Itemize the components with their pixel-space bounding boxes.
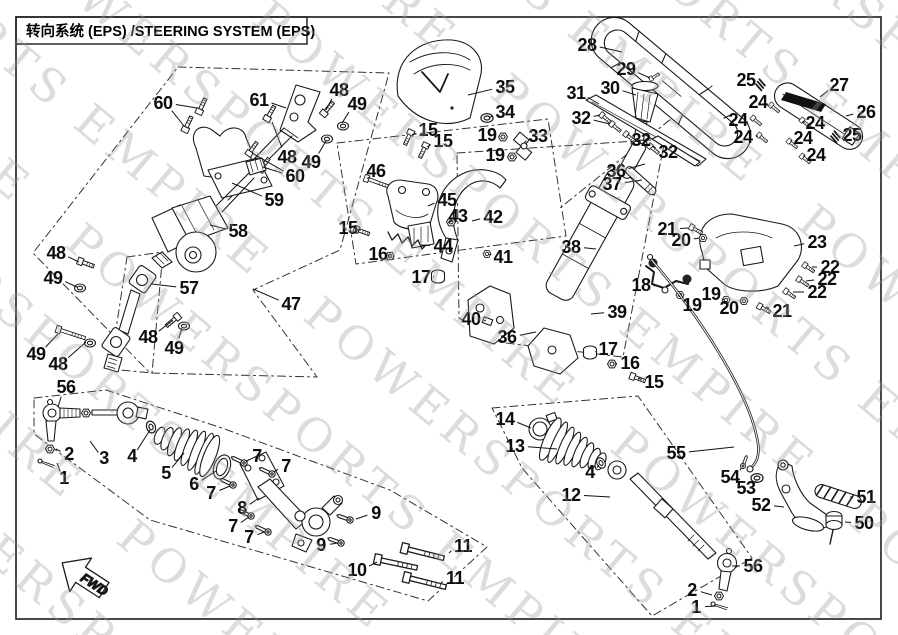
part-callout-40: 40 — [461, 309, 481, 329]
part-callout-1: 1 — [59, 468, 69, 488]
fastener-screw — [802, 262, 816, 274]
part-callout-56: 56 — [743, 556, 763, 576]
fastener-bolt — [400, 543, 445, 564]
tie-rod-left — [92, 402, 148, 424]
part-callout-16: 16 — [368, 244, 388, 264]
part-callout-11: 11 — [446, 568, 465, 588]
part-callout-15: 15 — [433, 131, 453, 151]
tie-rod-end-left — [43, 400, 80, 442]
part-callout-32: 32 — [631, 130, 651, 150]
part-callout-48: 48 — [277, 147, 297, 167]
part-callout-57: 57 — [179, 278, 199, 298]
part-callout-19: 19 — [682, 295, 702, 315]
clamp-ring — [145, 420, 157, 434]
fastener-nut — [508, 153, 517, 161]
part-callout-19: 19 — [477, 125, 497, 145]
part-callout-60: 60 — [153, 93, 173, 113]
leader-line — [584, 496, 610, 498]
part-callout-24: 24 — [748, 92, 768, 112]
leader-line — [591, 313, 604, 314]
parts-diagram-page: 转向系统 (EPS) /STEERING SYSTEM (EPS) — [0, 0, 898, 635]
leader-line — [58, 397, 61, 407]
part-callout-58: 58 — [228, 221, 248, 241]
mount-bracket-upper — [280, 85, 320, 142]
part-callout-15: 15 — [338, 218, 358, 238]
fastener-nut — [82, 409, 91, 417]
leader-line — [258, 532, 265, 535]
leader-line — [137, 430, 150, 450]
fastener-screw — [750, 115, 763, 127]
part-callout-7: 7 — [281, 456, 291, 476]
tie-rod-end-right — [718, 549, 737, 592]
part-callout-32: 32 — [571, 108, 591, 128]
part-callout-7: 7 — [228, 516, 238, 536]
leader-line — [159, 320, 173, 331]
part-callout-46: 46 — [366, 161, 386, 181]
leader-line — [820, 91, 828, 97]
fastener-bolt — [195, 97, 209, 116]
fastener-screw — [327, 535, 345, 547]
part-callout-34: 34 — [495, 102, 515, 122]
fastener-bolt — [417, 142, 430, 160]
bellows-left — [147, 414, 223, 479]
part-callout-11: 11 — [454, 536, 473, 556]
leader-line — [846, 114, 853, 116]
fastener-nut — [584, 346, 597, 359]
fastener-nut — [715, 592, 724, 600]
part-callout-37: 37 — [602, 174, 622, 194]
part-callout-10: 10 — [347, 560, 367, 580]
part-callout-20: 20 — [671, 230, 691, 250]
part-callout-7: 7 — [244, 527, 254, 547]
fastener-screw — [336, 512, 354, 524]
fastener-pin — [37, 459, 55, 468]
part-callout-52: 52 — [751, 495, 771, 515]
part-callout-30: 30 — [600, 78, 620, 98]
leader-line — [172, 111, 184, 126]
pivot-cover — [700, 214, 802, 291]
part-callout-8: 8 — [237, 498, 247, 518]
part-callout-7: 7 — [252, 446, 262, 466]
part-callout-13: 13 — [505, 436, 525, 456]
fastener-nut — [699, 235, 707, 242]
fastener-washer — [85, 339, 96, 347]
leader-line — [449, 551, 451, 553]
leader-line — [845, 522, 851, 523]
leader-line — [68, 257, 79, 262]
leader-line — [806, 280, 814, 281]
fastener-screw — [783, 288, 797, 300]
part-callout-6: 6 — [189, 474, 199, 494]
leader-line — [356, 515, 367, 519]
leader-line — [705, 606, 716, 607]
part-callout-35: 35 — [495, 77, 515, 97]
leader-line — [694, 238, 699, 239]
part-callout-28: 28 — [577, 35, 597, 55]
part-callout-9: 9 — [371, 503, 381, 523]
part-callout-49: 49 — [164, 338, 184, 358]
leader-line — [330, 543, 338, 544]
part-callout-3: 3 — [99, 448, 109, 468]
leader-line — [517, 422, 531, 428]
part-callout-55: 55 — [666, 443, 686, 463]
fastener-bolt — [402, 572, 447, 593]
leader-line — [441, 582, 443, 584]
part-callout-41: 41 — [493, 247, 513, 267]
leader-line — [689, 447, 734, 452]
part-callout-2: 2 — [64, 444, 74, 464]
part-callout-48: 48 — [46, 243, 66, 263]
fastener-washer — [75, 284, 86, 292]
part-callout-48: 48 — [329, 80, 349, 100]
part-callout-61: 61 — [249, 90, 269, 110]
fastener-nut — [46, 445, 55, 453]
leader-line — [68, 342, 86, 358]
part-callout-1: 1 — [691, 597, 701, 617]
fwd-arrow: FWD — [51, 546, 118, 609]
leader-line — [65, 282, 77, 287]
lever-knob — [826, 512, 842, 545]
leader-line — [253, 289, 279, 300]
part-callout-49: 49 — [43, 268, 63, 288]
column-cover — [397, 40, 481, 124]
part-callout-21: 21 — [772, 301, 792, 321]
part-callout-4: 4 — [585, 462, 595, 482]
leader-line — [250, 498, 259, 504]
part-callout-56: 56 — [56, 377, 76, 397]
leader-line — [152, 284, 176, 287]
part-callout-48: 48 — [48, 354, 68, 374]
part-callout-27: 27 — [829, 75, 849, 95]
fastener-screw — [756, 132, 769, 144]
part-callout-16: 16 — [620, 353, 640, 373]
fastener-washer — [322, 135, 333, 143]
part-callout-22: 22 — [807, 282, 827, 302]
fastener-screw — [254, 523, 272, 536]
fastener-washer — [179, 322, 190, 330]
part-callout-24: 24 — [733, 127, 753, 147]
steering-system-diagram: 转向系统 (EPS) /STEERING SYSTEM (EPS) — [0, 0, 898, 635]
fastener-bolt — [55, 325, 86, 341]
part-callout-38: 38 — [561, 237, 581, 257]
part-callout-36: 36 — [497, 327, 517, 347]
fastener-bolt — [402, 129, 415, 147]
leader-line — [701, 592, 712, 595]
part-callout-39: 39 — [607, 302, 627, 322]
leader-line — [484, 320, 486, 321]
leader-line — [90, 441, 98, 452]
fastener-washer — [481, 114, 493, 123]
part-callout-31: 31 — [566, 83, 586, 103]
fastener-nut — [740, 298, 748, 305]
part-callout-49: 49 — [347, 94, 367, 114]
leader-line — [489, 254, 490, 255]
part-callout-19: 19 — [701, 284, 721, 304]
part-callout-5: 5 — [161, 463, 171, 483]
part-callout-17: 17 — [411, 267, 431, 287]
fastener-clip — [755, 79, 766, 90]
part-callout-59: 59 — [264, 190, 284, 210]
fastener-bolt — [319, 100, 336, 118]
part-callout-9: 9 — [316, 535, 326, 555]
part-callout-4: 4 — [127, 446, 137, 466]
part-callout-17: 17 — [598, 339, 618, 359]
leader-line — [680, 228, 688, 229]
tie-rod-right — [608, 461, 716, 559]
part-callout-24: 24 — [806, 145, 826, 165]
leader-line — [740, 468, 741, 470]
part-callout-47: 47 — [281, 294, 301, 314]
part-callout-32: 32 — [658, 142, 678, 162]
part-callout-50: 50 — [854, 513, 874, 533]
part-callout-20: 20 — [719, 298, 739, 318]
leader-line — [46, 334, 58, 347]
part-callout-25: 25 — [736, 70, 756, 90]
part-callout-23: 23 — [807, 232, 827, 252]
fastener-bolt — [77, 257, 96, 270]
fastener-screw — [230, 454, 248, 467]
leader-line — [520, 332, 536, 335]
part-callout-26: 26 — [856, 102, 876, 122]
leader-line — [421, 245, 430, 246]
leader-line — [219, 486, 230, 491]
part-callout-14: 14 — [495, 409, 515, 429]
part-callout-18: 18 — [631, 275, 651, 295]
leader-line — [176, 105, 197, 109]
part-callout-7: 7 — [206, 483, 216, 503]
page-title: 转向系统 (EPS) /STEERING SYSTEM (EPS) — [26, 22, 315, 40]
part-callout-15: 15 — [644, 372, 664, 392]
leader-line — [272, 122, 282, 147]
leader-line — [774, 506, 784, 507]
part-callout-44: 44 — [433, 236, 453, 256]
fastener-bolt — [373, 554, 418, 573]
part-callout-25: 25 — [842, 125, 862, 145]
part-callout-43: 43 — [448, 206, 468, 226]
part-callout-51: 51 — [856, 487, 876, 507]
part-callout-29: 29 — [616, 59, 636, 79]
link-bracket — [646, 259, 692, 294]
part-callout-12: 12 — [561, 485, 581, 505]
leader-line — [472, 219, 480, 221]
part-callout-19: 19 — [485, 145, 505, 165]
part-callout-49: 49 — [26, 344, 46, 364]
part-callout-33: 33 — [528, 126, 548, 146]
part-callout-42: 42 — [483, 207, 503, 227]
part-callout-60: 60 — [285, 166, 305, 186]
fastener-screw — [609, 121, 623, 134]
part-callout-48: 48 — [138, 327, 158, 347]
fastener-washer — [338, 122, 349, 130]
